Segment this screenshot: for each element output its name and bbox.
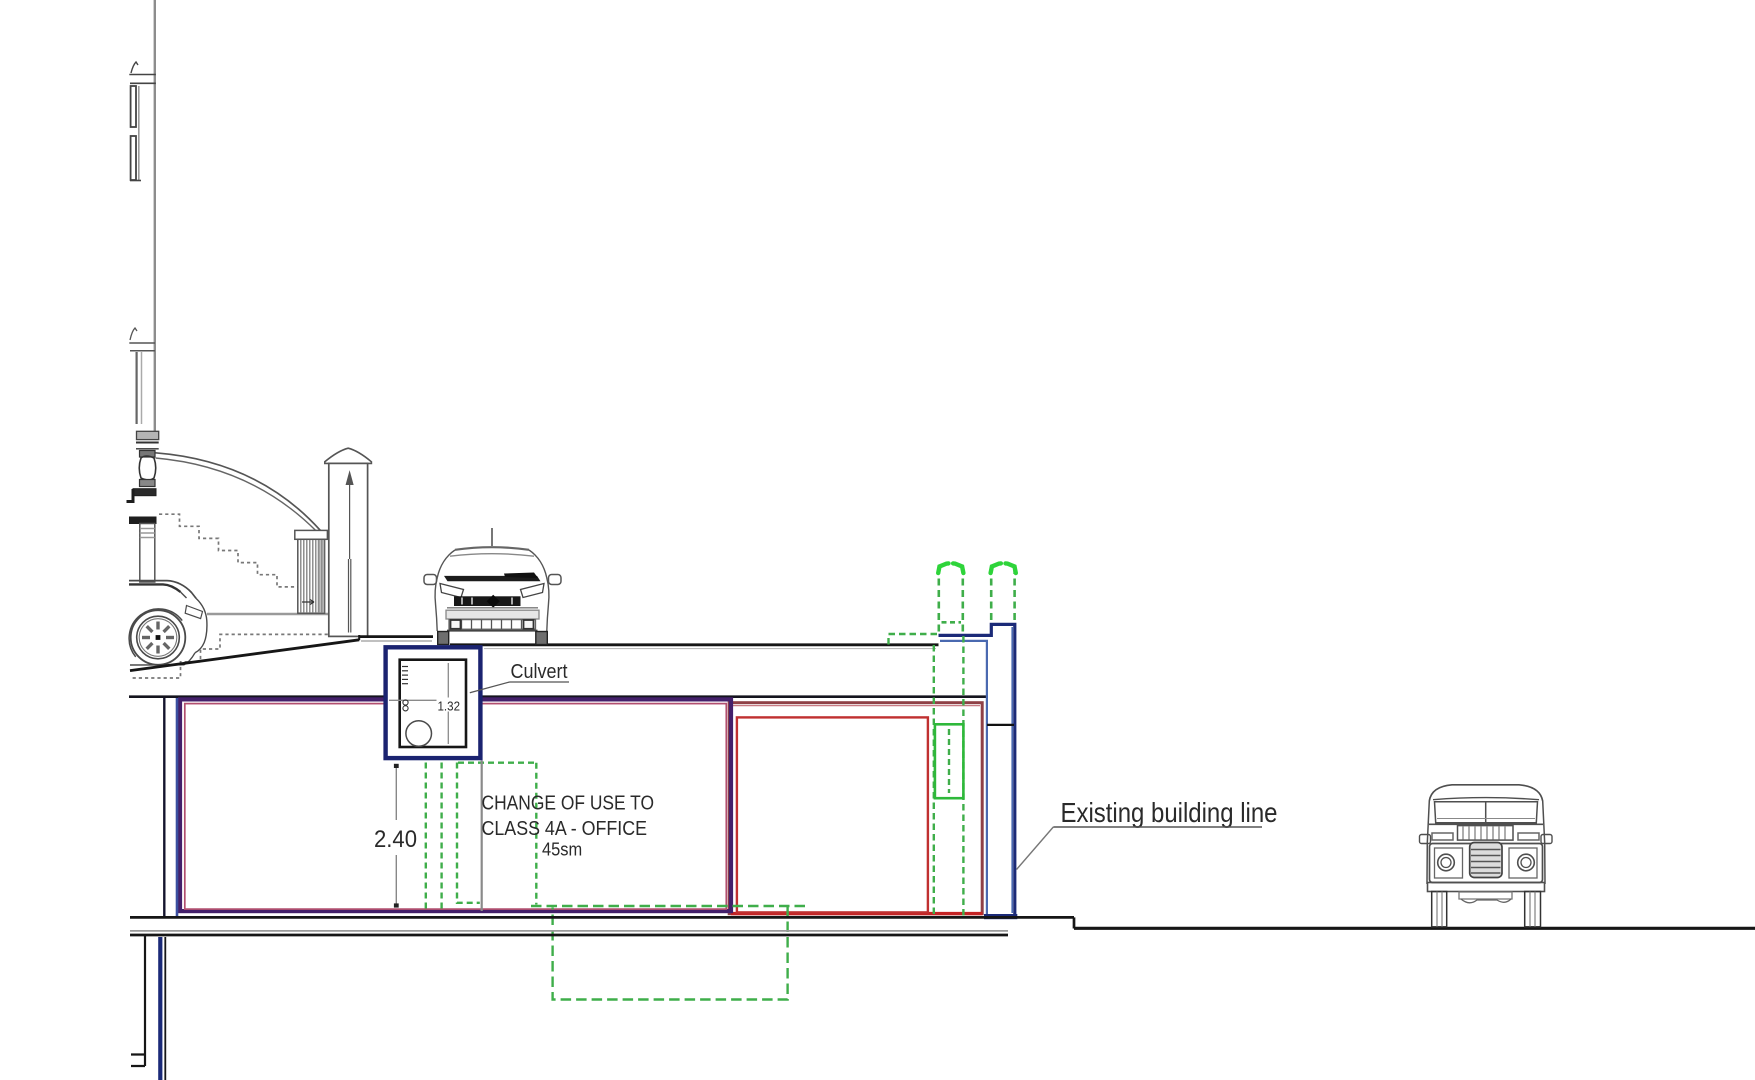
svg-text:Existing building line: Existing building line: [1061, 797, 1278, 828]
svg-text:45sm: 45sm: [542, 838, 582, 859]
svg-text:Culvert: Culvert: [511, 660, 568, 683]
svg-text:CHANGE OF USE TO: CHANGE OF USE TO: [482, 791, 655, 814]
svg-text:1.32: 1.32: [438, 699, 461, 714]
svg-text:2.40: 2.40: [374, 826, 417, 853]
svg-text:CLASS 4A - OFFICE: CLASS 4A - OFFICE: [482, 817, 648, 840]
